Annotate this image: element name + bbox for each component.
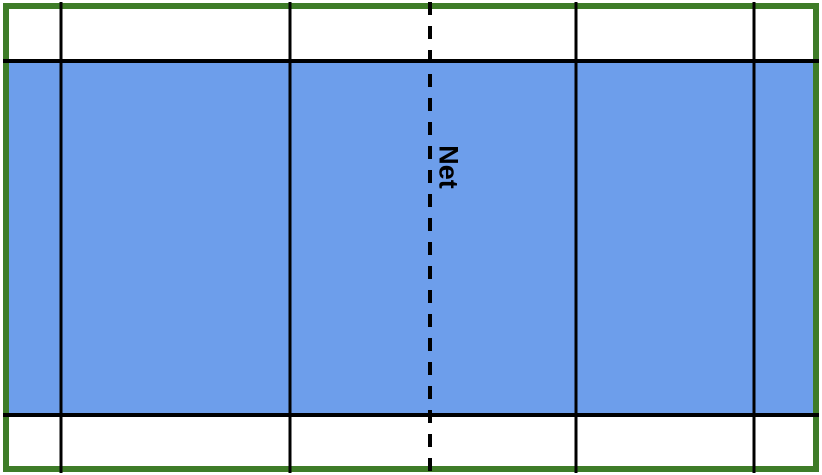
net-line [428,2,432,473]
left-long-service-line [60,2,63,473]
top-sideline [3,59,819,63]
court-diagram: Net [0,0,822,475]
left-short-service-line [289,2,292,473]
court-surface [9,61,813,415]
net-label: Net [435,145,462,189]
right-short-service-line [575,2,578,473]
right-long-service-line [753,2,756,473]
bottom-sideline [3,413,819,417]
